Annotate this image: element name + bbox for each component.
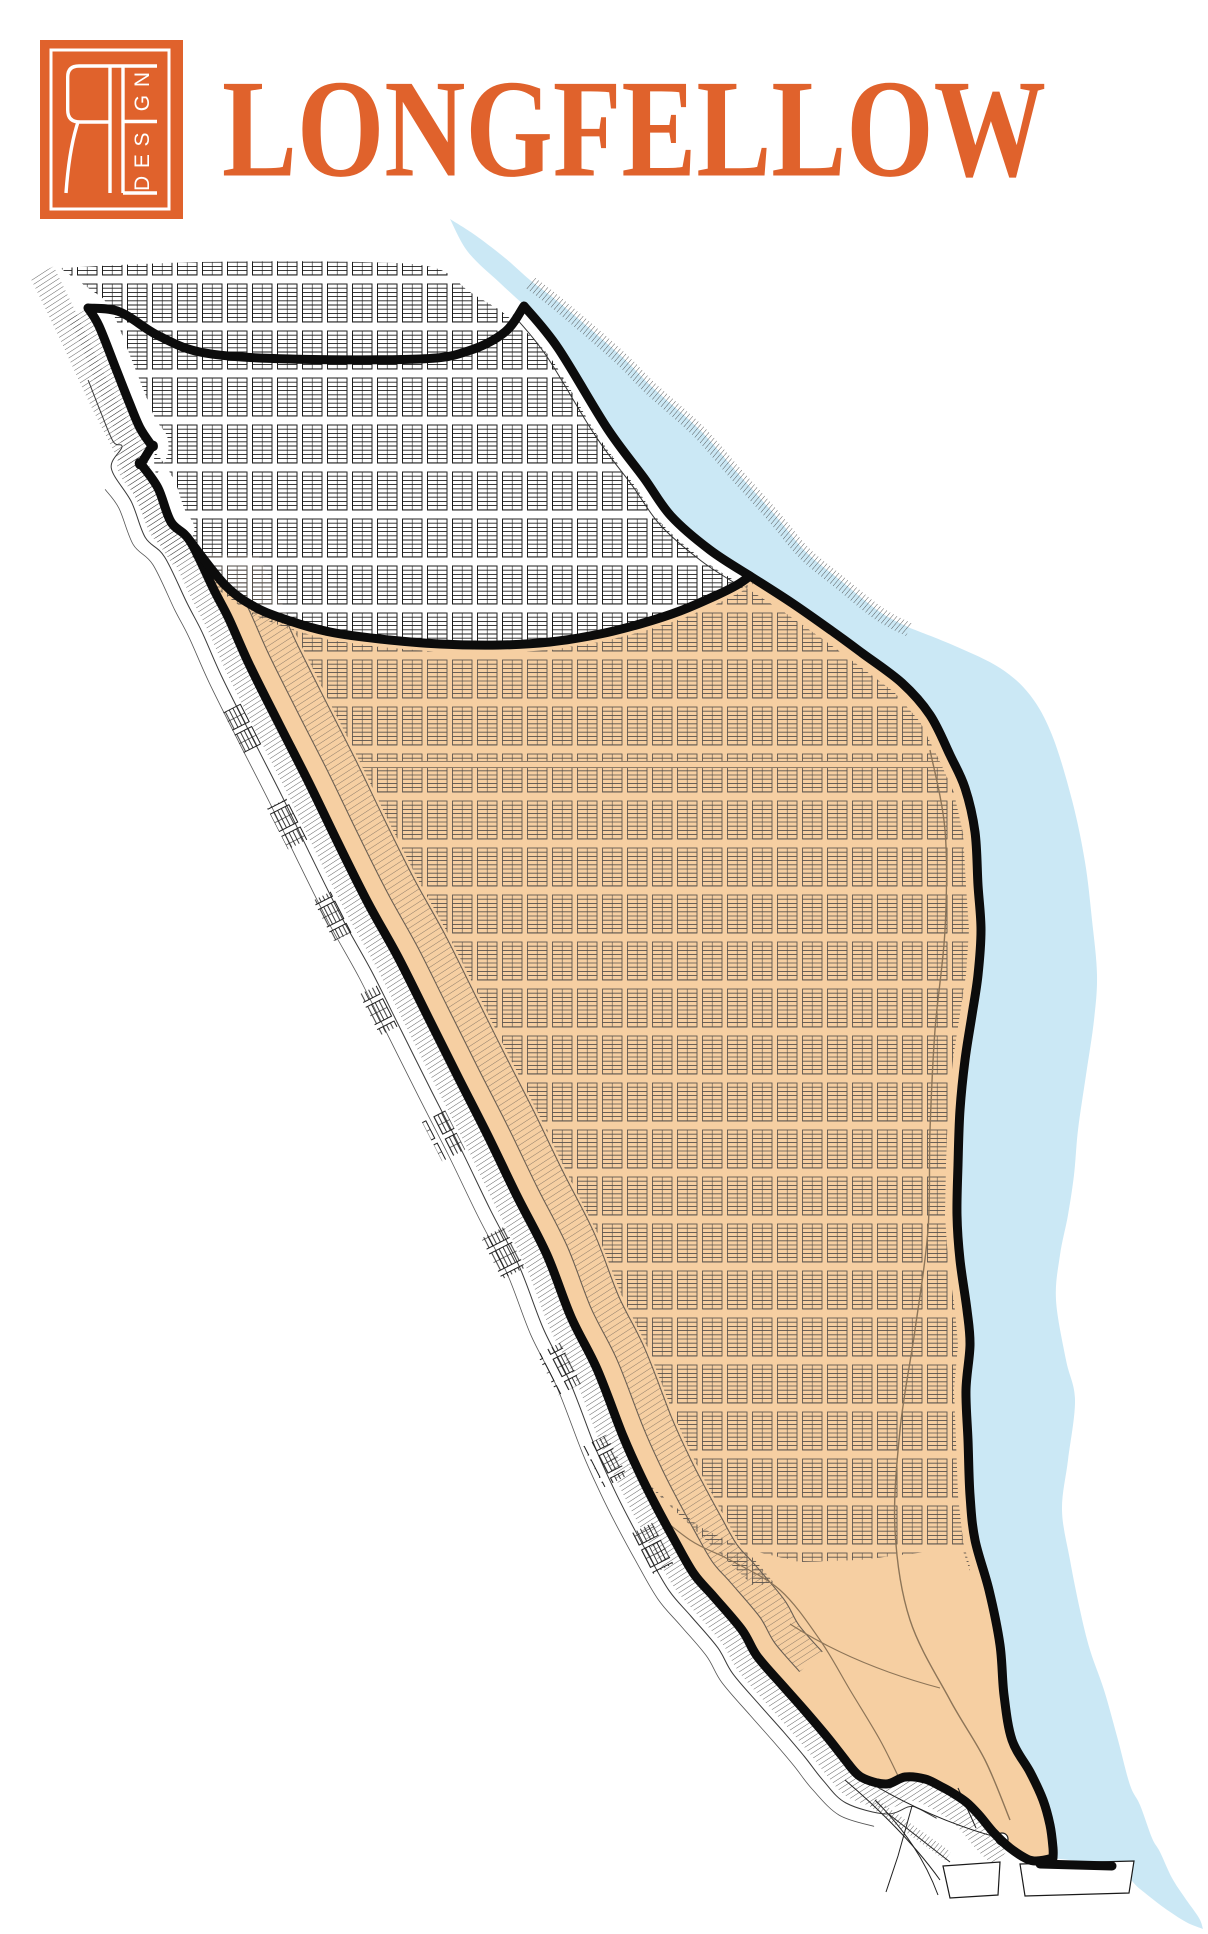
svg-text:LONGFELLOW: LONGFELLOW [222,52,1046,207]
